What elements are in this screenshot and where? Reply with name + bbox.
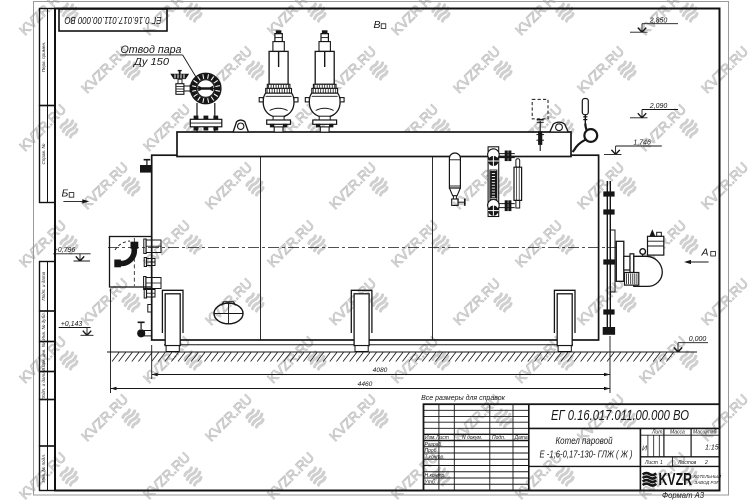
svg-text:0,000: 0,000 xyxy=(689,336,707,343)
svg-text:2,090: 2,090 xyxy=(649,103,668,110)
svg-text:Котел паровой: Котел паровой xyxy=(556,435,613,447)
svg-text:Масса: Масса xyxy=(670,429,685,435)
svg-text:2: 2 xyxy=(704,460,708,466)
svg-text:Перв. примен.: Перв. примен. xyxy=(41,42,46,73)
svg-text:ЕГ 0.16.017.011.00.000 ВО: ЕГ 0.16.017.011.00.000 ВО xyxy=(551,407,689,424)
svg-text:1:15: 1:15 xyxy=(705,445,719,452)
svg-text:Масштаб: Масштаб xyxy=(693,429,717,435)
svg-text:Подп. и дата: Подп. и дата xyxy=(41,271,46,300)
svg-text:Все размеры для справок: Все размеры для справок xyxy=(421,394,506,402)
svg-text:Подп. и дата: Подп. и дата xyxy=(41,371,46,400)
svg-text:В: В xyxy=(374,19,381,31)
svg-text:+0,796: +0,796 xyxy=(54,247,76,254)
svg-text:Дата: Дата xyxy=(514,435,528,441)
svg-text:Утб.: Утб. xyxy=(425,479,437,485)
svg-text:Справ. №: Справ. № xyxy=(41,144,46,165)
svg-text:4080: 4080 xyxy=(373,367,388,374)
svg-text:Лит.: Лит. xyxy=(651,429,664,435)
svg-text:Н.контр.: Н.контр. xyxy=(425,473,446,479)
svg-text:+0,143: +0,143 xyxy=(61,321,83,328)
svg-text:Т.контр.: Т.контр. xyxy=(425,454,445,460)
svg-text:N докум.: N докум. xyxy=(462,435,482,441)
svg-text:Подп.: Подп. xyxy=(492,435,505,441)
svg-text:ЕГ 0.16.017.011.00.000 ВО: ЕГ 0.16.017.011.00.000 ВО xyxy=(64,14,161,25)
svg-text:Изм.: Изм. xyxy=(425,435,436,441)
svg-text:Е -1,6-0,17-130- ГЛЖ ( Ж ): Е -1,6-0,17-130- ГЛЖ ( Ж ) xyxy=(540,449,633,461)
svg-text:Проб.: Проб. xyxy=(425,448,438,454)
svg-text:Лист: Лист xyxy=(644,460,658,466)
svg-text:1,746: 1,746 xyxy=(633,140,651,147)
svg-text:Б: Б xyxy=(62,188,69,200)
svg-text:4460: 4460 xyxy=(358,381,373,388)
svg-text:Разраб.: Разраб. xyxy=(425,442,443,448)
svg-text:КОТЕЛЬНЫЙ: КОТЕЛЬНЫЙ xyxy=(694,474,722,479)
svg-text:Формат А3: Формат А3 xyxy=(662,490,704,500)
svg-text:1: 1 xyxy=(660,460,663,466)
svg-text:Инв. № дубл.: Инв. № дубл. xyxy=(41,312,46,340)
svg-text:Лист: Лист xyxy=(435,435,449,441)
svg-text:Инв. № подл.: Инв. № подл. xyxy=(41,454,46,483)
svg-text:Ду 150: Ду 150 xyxy=(133,56,169,68)
svg-text:Отвод пара: Отвод пара xyxy=(121,44,182,56)
svg-text:KVZR: KVZR xyxy=(659,469,693,489)
svg-text:2,850: 2,850 xyxy=(649,18,668,25)
svg-text:Взам. инв. №: Взам. инв. № xyxy=(41,342,46,370)
svg-text:А: А xyxy=(701,247,709,259)
svg-text:Листов: Листов xyxy=(677,460,697,466)
svg-text:ЗАВОД РЭП: ЗАВОД РЭП xyxy=(695,480,721,485)
